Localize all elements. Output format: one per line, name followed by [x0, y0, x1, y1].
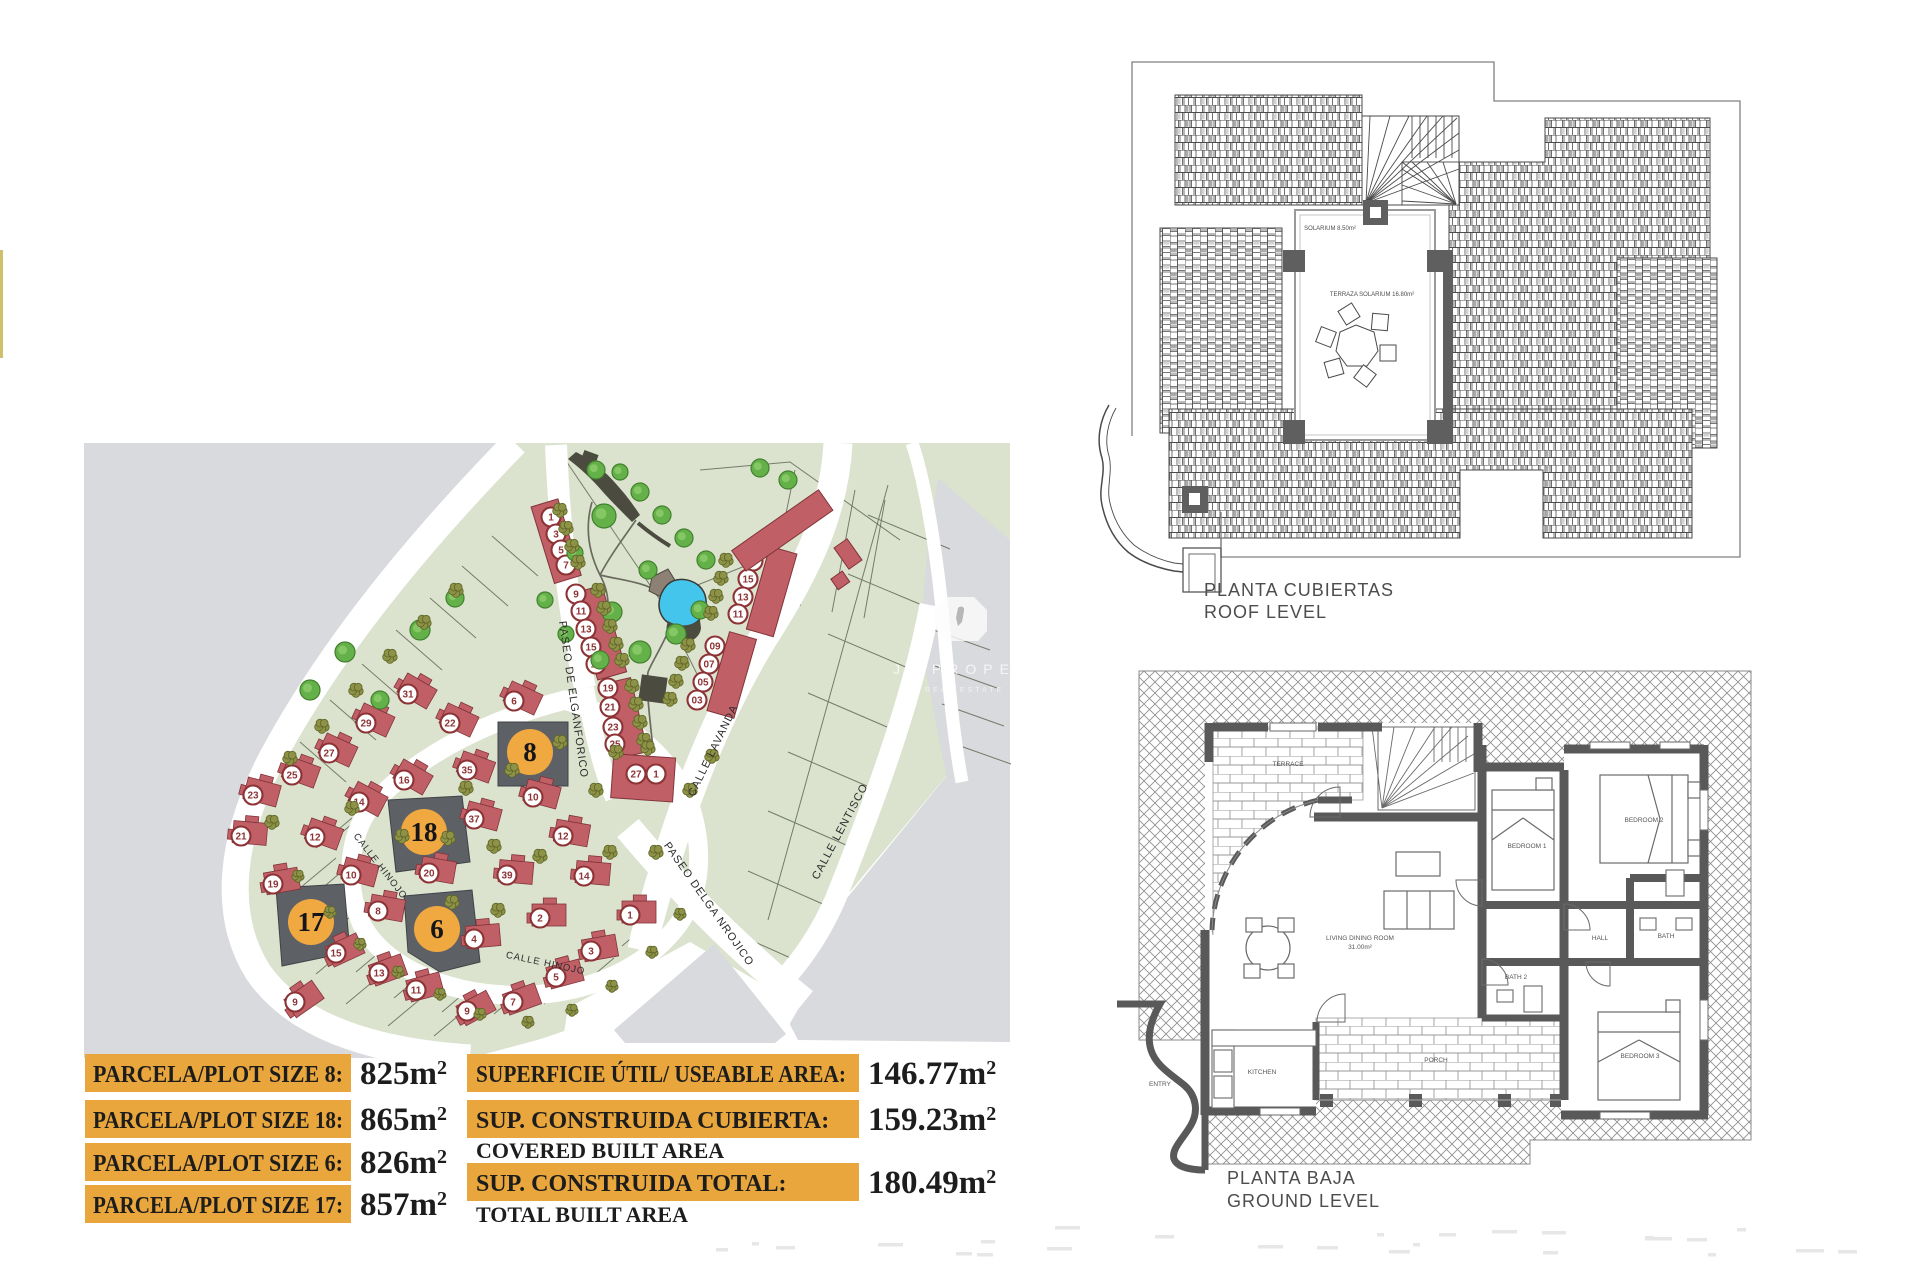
svg-text:3: 3	[553, 529, 559, 540]
svg-text:21: 21	[235, 831, 247, 842]
svg-text:BEDROOM 2: BEDROOM 2	[1624, 817, 1663, 824]
svg-text:12: 12	[309, 832, 321, 843]
svg-text:05: 05	[697, 677, 709, 688]
svg-text:07: 07	[703, 659, 715, 670]
svg-text:8: 8	[523, 737, 537, 767]
svg-text:BEDROOM 3: BEDROOM 3	[1620, 1053, 1659, 1060]
svg-text:13: 13	[373, 968, 385, 979]
svg-text:15: 15	[330, 948, 342, 959]
svg-text:180.49m2: 180.49m2	[868, 1165, 996, 1201]
svg-text:PLANTA CUBIERTAS: PLANTA CUBIERTAS	[1204, 580, 1394, 600]
svg-text:35: 35	[461, 765, 473, 776]
svg-text:COVERED BUILT AREA: COVERED BUILT AREA	[476, 1138, 724, 1163]
svg-text:PLANTA BAJA: PLANTA BAJA	[1227, 1168, 1356, 1188]
svg-text:1: 1	[548, 512, 554, 523]
svg-text:PARCELA/PLOT SIZE 17:: PARCELA/PLOT SIZE 17:	[93, 1193, 343, 1219]
svg-text:7: 7	[563, 560, 569, 571]
svg-text:10: 10	[345, 870, 357, 881]
svg-text:159.23m2: 159.23m2	[868, 1102, 996, 1138]
svg-text:SOLARIUM 8.50m²: SOLARIUM 8.50m²	[1304, 226, 1356, 232]
svg-text:9: 9	[292, 997, 298, 1008]
svg-text:17: 17	[298, 907, 325, 937]
svg-text:PARCELA/PLOT SIZE 18:: PARCELA/PLOT SIZE 18:	[93, 1108, 343, 1134]
svg-text:31.00m²: 31.00m²	[1348, 944, 1373, 951]
svg-text:16: 16	[398, 775, 410, 786]
svg-text:LIVING DINING ROOM: LIVING DINING ROOM	[1326, 935, 1394, 942]
svg-text:5: 5	[558, 545, 564, 556]
svg-text:12: 12	[557, 831, 569, 842]
svg-text:5: 5	[553, 972, 559, 983]
svg-text:11: 11	[733, 609, 744, 620]
svg-text:865m2: 865m2	[360, 1102, 447, 1138]
svg-text:GROUND LEVEL: GROUND LEVEL	[1227, 1191, 1380, 1211]
svg-text:8: 8	[375, 906, 381, 917]
svg-text:9: 9	[464, 1006, 470, 1017]
svg-text:HALL: HALL	[1592, 935, 1609, 942]
svg-text:857m2: 857m2	[360, 1187, 447, 1223]
svg-text:3: 3	[588, 946, 594, 957]
svg-text:6: 6	[511, 696, 517, 707]
svg-text:27: 27	[323, 748, 335, 759]
svg-text:2: 2	[537, 913, 543, 924]
svg-text:19: 19	[267, 879, 279, 890]
svg-text:JJ PROPERT: JJ PROPERT	[893, 661, 1048, 677]
svg-text:BATH 2: BATH 2	[1505, 974, 1528, 981]
svg-text:03: 03	[691, 695, 703, 706]
svg-text:9: 9	[573, 589, 579, 600]
svg-text:PARCELA/PLOT SIZE 8:: PARCELA/PLOT SIZE 8:	[93, 1062, 343, 1088]
svg-text:REAL ESTATE: REAL ESTATE	[925, 687, 1004, 694]
svg-text:39: 39	[501, 870, 513, 881]
svg-text:ROOF LEVEL: ROOF LEVEL	[1204, 602, 1327, 622]
svg-text:SUP. CONSTRUIDA CUBIERTA:: SUP. CONSTRUIDA CUBIERTA:	[476, 1108, 829, 1134]
svg-text:21: 21	[604, 702, 616, 713]
svg-text:13: 13	[737, 592, 749, 603]
svg-text:11: 11	[576, 606, 587, 617]
svg-text:SUP. CONSTRUIDA TOTAL:: SUP. CONSTRUIDA TOTAL:	[476, 1171, 787, 1197]
svg-text:1: 1	[627, 910, 633, 921]
svg-text:13: 13	[580, 624, 592, 635]
svg-text:TOTAL BUILT AREA: TOTAL BUILT AREA	[476, 1202, 688, 1227]
svg-text:23: 23	[607, 722, 619, 733]
svg-text:KITCHEN: KITCHEN	[1248, 1069, 1277, 1076]
svg-text:BATH: BATH	[1658, 933, 1675, 940]
svg-text:14: 14	[578, 871, 590, 882]
svg-text:19: 19	[602, 683, 614, 694]
svg-text:6: 6	[430, 914, 444, 944]
svg-text:826m2: 826m2	[360, 1145, 447, 1181]
svg-text:ENTRY: ENTRY	[1149, 1081, 1172, 1088]
svg-text:37: 37	[468, 814, 480, 825]
svg-text:22: 22	[444, 718, 456, 729]
svg-text:7: 7	[510, 997, 516, 1008]
svg-text:20: 20	[423, 868, 435, 879]
svg-text:TERRACE: TERRACE	[1272, 761, 1304, 768]
svg-text:825m2: 825m2	[360, 1056, 447, 1092]
svg-text:11: 11	[411, 985, 422, 996]
svg-text:BEDROOM 1: BEDROOM 1	[1507, 843, 1546, 850]
svg-text:09: 09	[709, 641, 721, 652]
svg-text:10: 10	[527, 792, 539, 803]
svg-text:1: 1	[653, 769, 659, 780]
svg-text:23: 23	[247, 790, 259, 801]
svg-text:29: 29	[360, 718, 372, 729]
svg-text:SUPERFICIE ÚTIL/ USEABLE AREA:: SUPERFICIE ÚTIL/ USEABLE AREA:	[476, 1062, 846, 1088]
svg-text:27: 27	[630, 769, 642, 780]
svg-text:TERRAZA SOLARIUM 16.80m²: TERRAZA SOLARIUM 16.80m²	[1330, 292, 1414, 298]
svg-text:25: 25	[286, 770, 298, 781]
svg-text:PORCH: PORCH	[1424, 1057, 1448, 1064]
svg-text:15: 15	[742, 574, 754, 585]
svg-text:31: 31	[402, 689, 414, 700]
svg-text:18: 18	[411, 817, 438, 847]
svg-text:146.77m2: 146.77m2	[868, 1056, 996, 1092]
svg-text:4: 4	[471, 934, 477, 945]
svg-text:PARCELA/PLOT SIZE 6:: PARCELA/PLOT SIZE 6:	[93, 1151, 343, 1177]
